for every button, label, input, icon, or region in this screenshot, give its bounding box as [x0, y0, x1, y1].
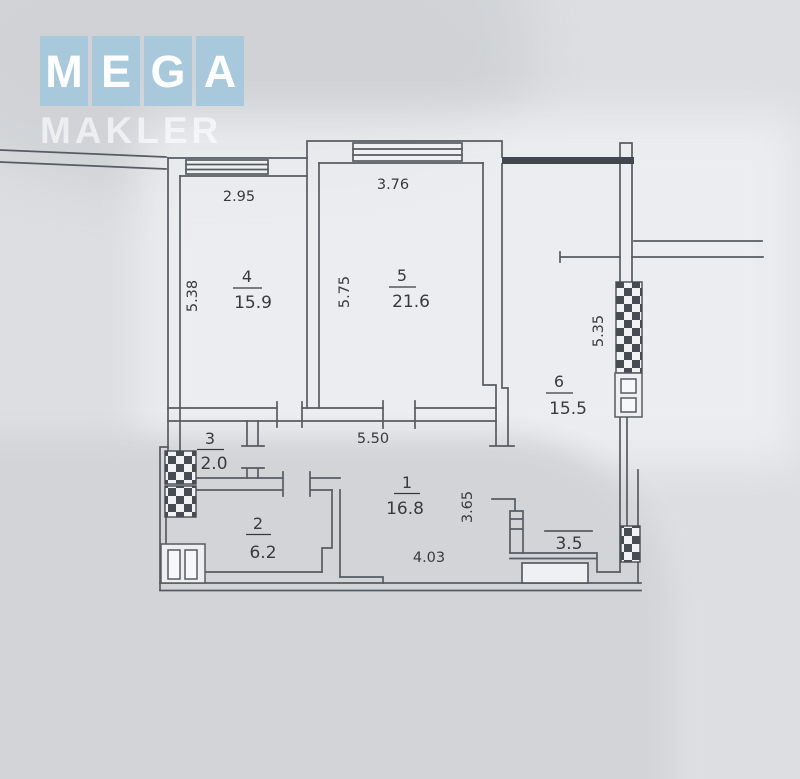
- room2-area: 6.2: [249, 543, 276, 563]
- logo-letter-m: M: [45, 49, 83, 94]
- room2-right-wall: [322, 490, 340, 577]
- vent-shaft-left-b: [165, 486, 196, 517]
- room2-number: 2: [253, 514, 263, 533]
- logo-letter-a: A: [204, 49, 237, 94]
- window-balcony: [522, 563, 588, 583]
- room6-area: 15.5: [549, 399, 587, 419]
- scanned-floor-plan-page: 4 15.9 5 21.6 6 15.5 3 2.0 2 6.2 1 16.8 …: [0, 0, 800, 779]
- room3-area: 2.0: [200, 454, 227, 474]
- logo-subtitle: MAKLER: [40, 112, 244, 149]
- logo-square-g: G: [144, 36, 192, 106]
- room6-number: 6: [554, 372, 564, 391]
- window-room5: [353, 143, 462, 161]
- room1-floor-step: [340, 577, 383, 583]
- mega-makler-watermark: M E G A MAKLER: [40, 36, 244, 149]
- bottom-outer-wall: [160, 583, 641, 591]
- dim-hall-height: 3.65: [460, 491, 476, 523]
- vent-shaft-bottom-right: [621, 526, 640, 562]
- balcony-area: 3.5: [555, 534, 582, 554]
- exterior-wall-extension-left: [0, 150, 166, 169]
- room4-number: 4: [242, 267, 252, 286]
- room6-top-thick-wall: [502, 157, 634, 164]
- dim-room6-height: 5.35: [591, 315, 607, 347]
- exterior-wall-extension-right: [560, 241, 763, 262]
- logo-letter-g: G: [150, 49, 185, 94]
- dim-room4-height: 5.38: [185, 280, 201, 312]
- room4-left-wall: [168, 158, 180, 478]
- duct-box-bottom-left: [161, 544, 205, 583]
- room5-right-wall: [483, 163, 514, 446]
- logo-letter-e: E: [101, 49, 131, 94]
- window-room4: [186, 160, 268, 174]
- room1-area: 16.8: [386, 499, 424, 519]
- dim-room5-height: 5.75: [337, 276, 353, 308]
- room1-number: 1: [402, 473, 412, 492]
- door-jambs-room4-room5: [277, 401, 415, 428]
- room5-number: 5: [397, 266, 407, 285]
- logo-square-a: A: [196, 36, 244, 106]
- dim-hall-width: 5.50: [357, 431, 389, 447]
- dim-hall-bottom-width: 4.03: [413, 550, 445, 566]
- logo-squares: M E G A: [40, 36, 244, 106]
- dim-room4-width: 2.95: [223, 189, 255, 205]
- room5-area: 21.6: [392, 292, 430, 312]
- hall-balcony-stub-wall: [492, 499, 523, 553]
- logo-square-e: E: [92, 36, 140, 106]
- room3-number: 3: [205, 429, 215, 448]
- duct-box-right: [615, 373, 642, 417]
- dim-room5-width: 3.76: [377, 177, 409, 193]
- room4-room5-bottom-wall: [168, 408, 496, 421]
- room4-room5-partition: [307, 158, 319, 408]
- vent-shaft-left-a: [165, 451, 196, 484]
- room3-right-wall-door: [242, 421, 264, 478]
- logo-square-m: M: [40, 36, 88, 106]
- vent-shaft-right-column: [616, 282, 642, 373]
- room4-area: 15.9: [234, 293, 272, 313]
